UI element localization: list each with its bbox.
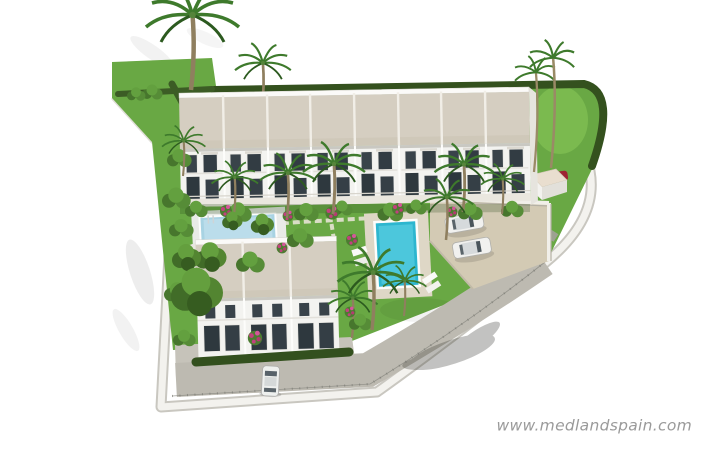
- flower-bush: [345, 307, 356, 318]
- flower-bush: [248, 331, 262, 345]
- street-car: [259, 365, 283, 397]
- flower-bush: [392, 203, 404, 215]
- watermark: www.medlandspain.com: [497, 416, 692, 434]
- render-canvas: www.medlandspain.com www.medlandspain.co…: [0, 0, 705, 454]
- aerial-render: www.medlandspain.com www.medlandspain.co…: [0, 0, 705, 454]
- flower-bush: [346, 234, 358, 246]
- townhouse-row-top: [179, 87, 538, 211]
- flower-bush: [277, 243, 288, 254]
